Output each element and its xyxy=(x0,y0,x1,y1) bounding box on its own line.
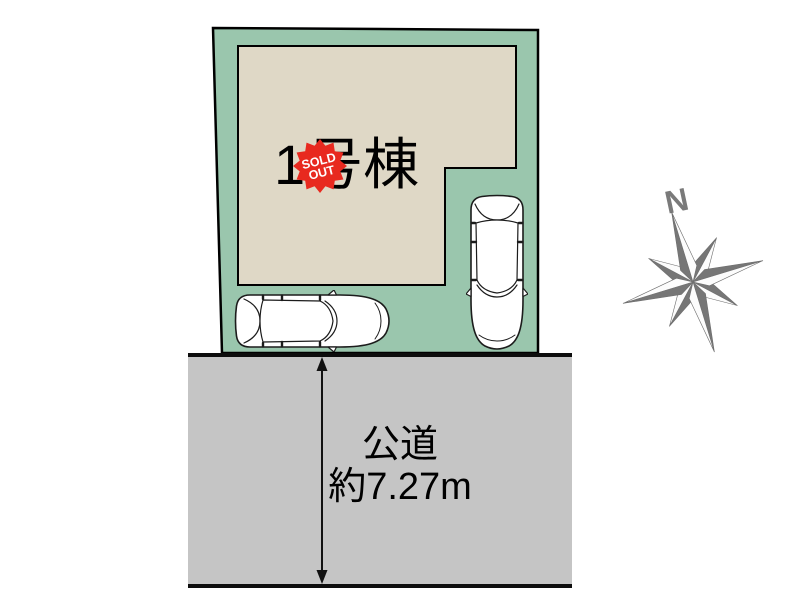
road-name: 公道 xyxy=(298,424,502,466)
road-label: 公道 約7.27m xyxy=(298,424,502,508)
road-width-value: 約7.27m xyxy=(298,466,502,508)
sold-out-badge: SOLD OUT xyxy=(292,138,348,194)
compass-rose-icon: N xyxy=(608,176,793,360)
site-plan-canvas: 1号棟 SOLD OUT xyxy=(0,0,800,602)
car-top-view-icon xyxy=(232,290,392,352)
car-top-view-icon xyxy=(466,192,528,352)
north-label: N xyxy=(662,181,692,221)
